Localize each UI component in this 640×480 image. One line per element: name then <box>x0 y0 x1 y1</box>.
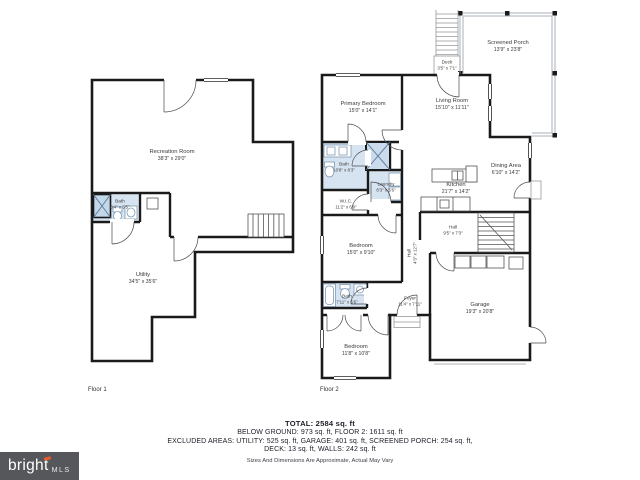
summary-line3: DECK: 13 sq. ft, WALLS: 242 sq. ft <box>0 446 640 453</box>
room-label-hall-upper: Hall 4'3" x 12'7" <box>406 242 417 264</box>
floor1-tag: Floor 1 <box>88 387 107 393</box>
summary-total: TOTAL: 2584 sq. ft <box>0 419 640 428</box>
floor1-equipment-box <box>147 198 158 209</box>
room-label-garage: Garage 19'3" x 20'8" <box>466 302 494 316</box>
room-label-primary-bedroom: Primary Bedroom 15'0" x 14'1" <box>340 101 385 115</box>
room-label-wic: W.I.C. 11'2" x 6'9" <box>335 198 356 209</box>
summary-line2: EXCLUDED AREAS: UTILITY: 525 sq. ft, GAR… <box>0 438 640 445</box>
room-label-f1-bath: Bath 8'4" x 5'5" <box>110 198 129 209</box>
bright-mls-logo: bright MLS <box>0 452 79 480</box>
room-label-deck: Deck 3'5" x 7'1" <box>437 59 456 70</box>
room-label-laundry: Laundry 8'3" x 5'6" <box>376 181 395 192</box>
floor1-doors <box>112 80 198 261</box>
room-label-kitchen: Kitchen 21'7" x 14'2" <box>442 182 470 196</box>
floor1-plan <box>92 77 293 361</box>
floor1-stairs <box>248 214 284 237</box>
room-label-recreation: Recreation Room 38'3" x 29'0" <box>149 149 194 163</box>
summary-line1: BELOW GROUND: 973 sq. ft, FLOOR 2: 1611 … <box>0 429 640 436</box>
floor2-stairs <box>478 213 514 252</box>
summary-disclaimer: Sizes And Dimensions Are Approximate, Ac… <box>0 458 640 464</box>
floor2-tag: Floor 2 <box>320 387 339 393</box>
floorplan-canvas <box>0 0 640 480</box>
room-label-dining-area: Dining Area 6'10" x 14'2" <box>491 163 521 177</box>
floorplan-image: Recreation Room 38'3" x 29'0" Bath 8'4" … <box>0 0 640 480</box>
room-label-utility: Utility 34'5" x 35'6" <box>129 272 157 286</box>
room-label-hall-lower: Hall 9'5" x 7'3" <box>443 224 462 235</box>
logo-suffix-text: MLS <box>52 465 71 474</box>
garage-storage-boxes <box>455 256 523 269</box>
room-label-primary-bath: Bath 10'8" x 8'3" <box>333 161 355 172</box>
room-label-foyer: Foyer 11'4" x 7'11" <box>398 295 421 306</box>
area-summary: TOTAL: 2584 sq. ft BELOW GROUND: 973 sq.… <box>0 419 640 464</box>
logo-brand-text: bright <box>8 457 49 475</box>
room-label-bedroom-mid: Bedroom 15'0" x 9'10" <box>347 243 375 257</box>
room-label-screened-porch: Screened Porch 13'9" x 23'8" <box>487 40 529 54</box>
room-label-living-room: Living Room 15'10" x 11'11" <box>435 98 468 112</box>
room-label-hall-bath: Bath 7'11" x 5'6" <box>336 293 357 304</box>
floor1-shower <box>94 195 111 218</box>
room-label-bedroom-front: Bedroom 11'8" x 10'8" <box>342 344 370 358</box>
